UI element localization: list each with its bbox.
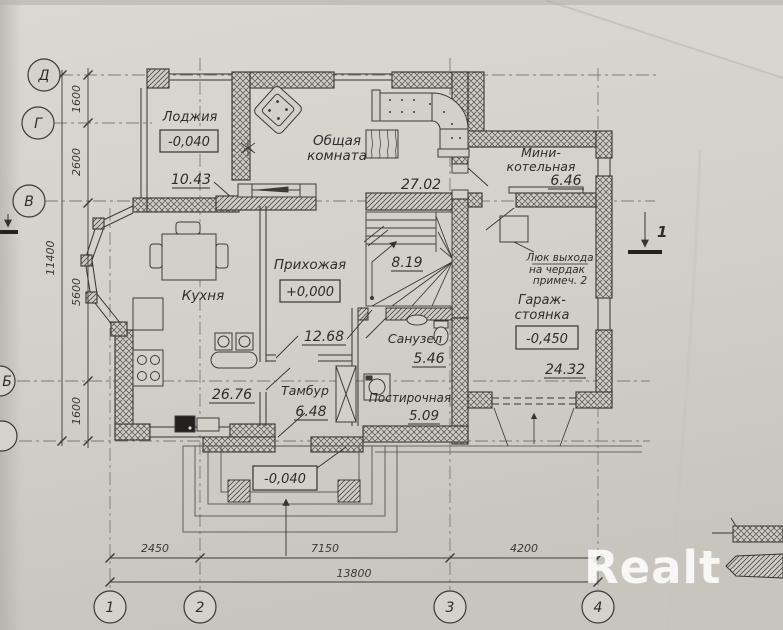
wall-living-top-a xyxy=(250,72,334,88)
room-area-bathroom: 5.46 xyxy=(413,351,444,367)
room-label-laundry: Постирочная xyxy=(369,391,451,405)
dim-bottom-2: 4200 xyxy=(510,542,538,555)
floor-plan-photo: 1 1600 2600 5600 1600 11400 xyxy=(0,0,783,630)
kitchen-oven xyxy=(175,416,219,432)
room-area-living: 27.02 xyxy=(401,177,441,193)
axis-row-b: Б xyxy=(2,374,12,390)
wall-loggia-living xyxy=(232,72,250,180)
axis-col-2: 2 xyxy=(196,600,205,616)
dim-left-3: 1600 xyxy=(70,397,83,425)
wall-corner-column xyxy=(147,69,169,88)
room-area-laundry: 5.09 xyxy=(409,408,439,424)
room-label-hall: Прихожая xyxy=(274,257,346,273)
wall-interior-right-upper xyxy=(452,199,468,318)
room-label-loggia: Лоджия xyxy=(162,110,218,125)
axis-row-v: В xyxy=(24,194,34,210)
note-attic-1: Люк выхода xyxy=(525,252,593,264)
room-label-living-1: Общая xyxy=(313,133,361,149)
dim-left-total: 11400 xyxy=(44,241,57,276)
room-label-garage-1: Гараж- xyxy=(518,293,566,308)
porch-column xyxy=(338,480,360,502)
room-label-kitchen: Кухня xyxy=(182,288,225,304)
wall-porch-top-a xyxy=(203,437,275,452)
wall-outer-right-a xyxy=(596,131,612,158)
wall-garage-bottom-left xyxy=(468,392,492,408)
room-label-garage-2: стоянка xyxy=(515,308,570,323)
room-label-vestibule: Тамбур xyxy=(281,383,329,398)
level-value-garage: -0,450 xyxy=(526,332,568,347)
level-value-porch: -0,040 xyxy=(264,472,306,487)
dim-bottom-1: 7150 xyxy=(311,542,339,555)
tv-stand xyxy=(366,130,398,158)
dim-left-0: 1600 xyxy=(70,85,83,113)
room-area-stairs: 8.19 xyxy=(391,255,422,271)
axis-row-g: Г xyxy=(34,116,43,132)
shelf-unit xyxy=(238,184,316,197)
watermark-realt: Realt xyxy=(584,541,721,594)
axis-col-4: 4 xyxy=(594,600,603,616)
wall-garage-bottom-right xyxy=(576,392,612,408)
level-value-loggia: -0,040 xyxy=(168,135,210,150)
section-mark-label: 1 xyxy=(657,223,667,241)
wall-kitchen-bottom-a xyxy=(115,424,150,440)
room-label-living-2: комната xyxy=(307,148,367,164)
wall-boiler-garage xyxy=(516,193,596,207)
dim-left-1: 2600 xyxy=(70,148,83,176)
wall-stairs-lintel xyxy=(366,193,452,210)
room-area-garage: 24.32 xyxy=(545,362,585,378)
level-value-hall: +0,000 xyxy=(286,285,334,300)
room-area-vestibule: 6.48 xyxy=(295,404,326,420)
note-attic-3: примеч. 2 xyxy=(533,275,588,287)
wall-laundry-bottom xyxy=(363,426,468,442)
cooktop xyxy=(133,350,163,386)
floor-plan-drawing: 1 1600 2600 5600 1600 11400 xyxy=(0,0,783,630)
dim-bottom-total: 13800 xyxy=(337,567,372,580)
living-boiler-door-jamb xyxy=(452,164,468,173)
bathroom-sink xyxy=(407,315,427,325)
axis-row-d: Д xyxy=(38,68,50,84)
axis-col-3: 3 xyxy=(446,600,455,616)
wall-outer-right-b xyxy=(596,176,612,298)
dim-left-2: 5600 xyxy=(70,278,83,306)
axis-col-1: 1 xyxy=(106,600,115,616)
room-label-bathroom: Санузел xyxy=(388,331,442,346)
room-label-boiler-2: котельная xyxy=(507,159,576,174)
room-area-loggia: 10.43 xyxy=(171,172,211,188)
room-area-hall: 12.68 xyxy=(304,329,344,345)
wall-porch-top-b xyxy=(311,437,363,452)
dim-bottom-0: 2450 xyxy=(141,542,169,555)
porch-column xyxy=(228,480,250,502)
room-label-boiler-1: Мини- xyxy=(521,145,561,160)
wall-interior-right-lower xyxy=(452,318,468,444)
room-area-boiler: 6.46 xyxy=(550,173,581,189)
wardrobe xyxy=(336,366,356,422)
room-area-kitchen: 26.76 xyxy=(212,387,252,403)
